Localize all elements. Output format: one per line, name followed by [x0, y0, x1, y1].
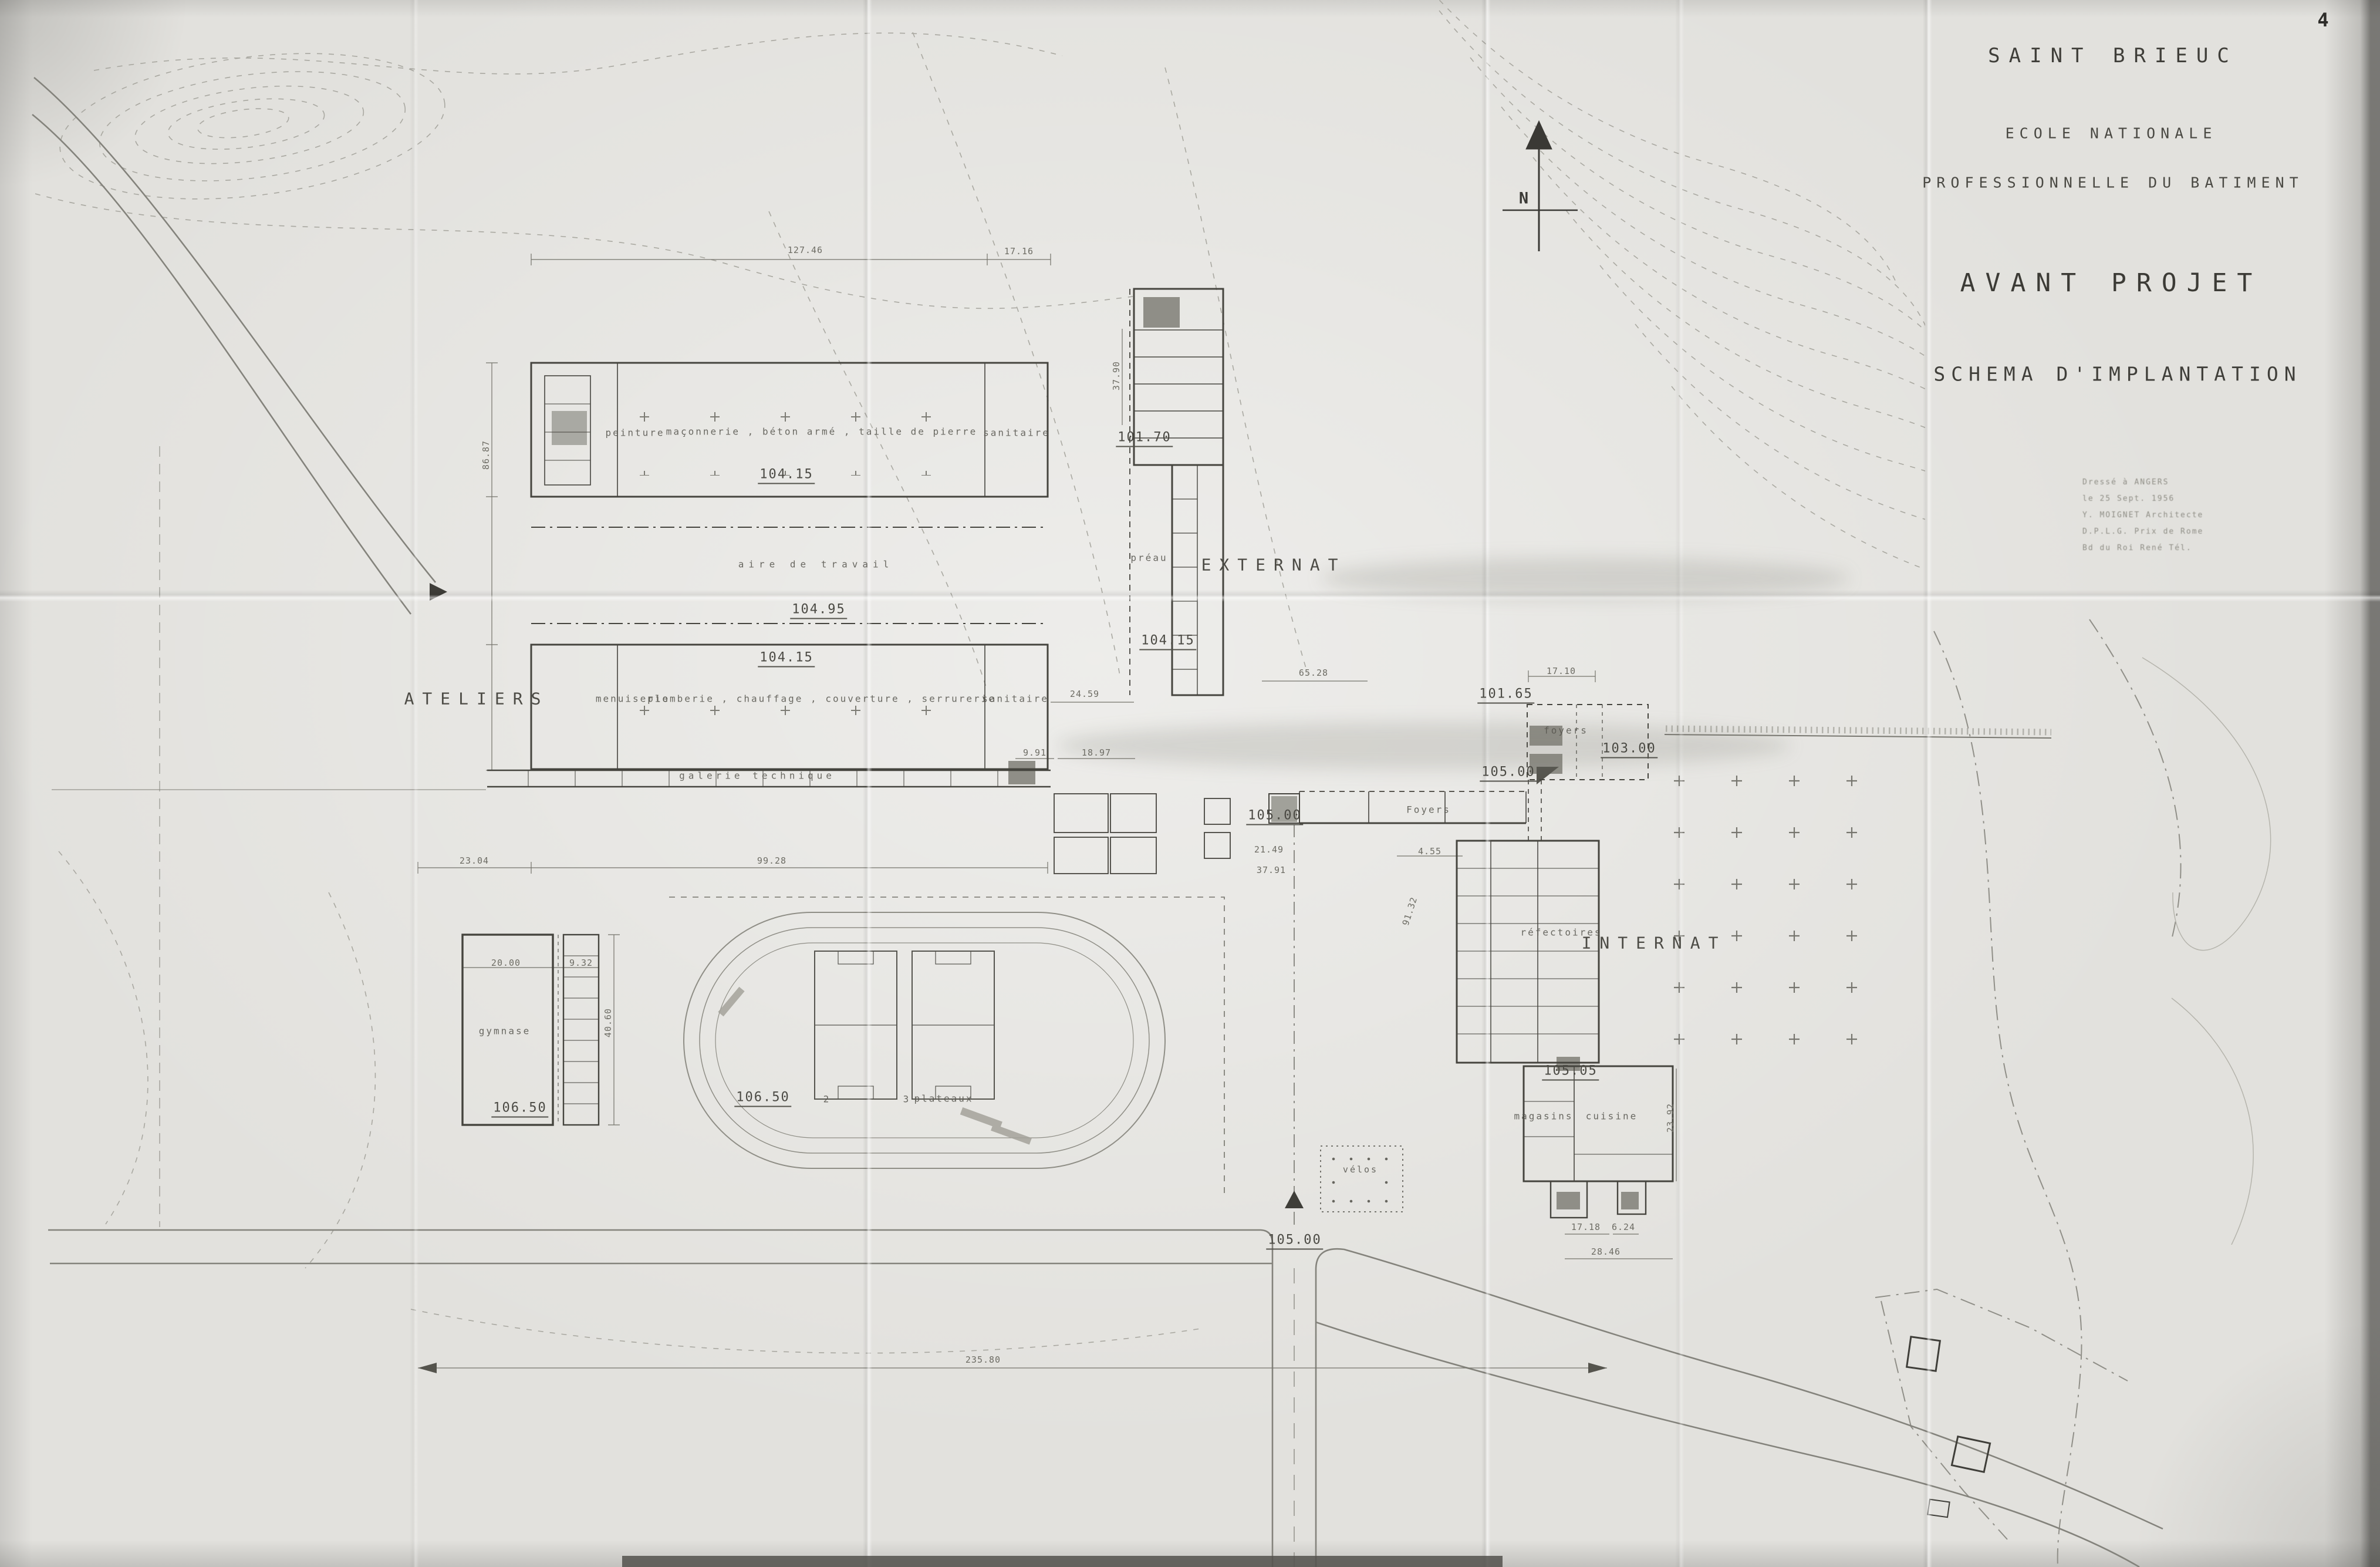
level-aire: 104.95 — [790, 602, 847, 619]
dim-99-28: 99.28 — [757, 855, 786, 866]
dim-86-87: 86.87 — [481, 440, 491, 470]
room-preau: préau — [1130, 552, 1167, 564]
level-route: 105.00 — [1266, 1233, 1323, 1250]
title-notes: Dressé à ANGERS le 25 Sept. 1956 Y. MOIG… — [2082, 474, 2203, 557]
south-entry-arrow — [1285, 1191, 1304, 1208]
dim-23-92: 23.92 — [1665, 1103, 1676, 1133]
room-refectoires: réfectoires — [1521, 927, 1602, 938]
boundary-lines — [1875, 619, 2181, 1567]
room-cuisine: cuisine — [1586, 1111, 1638, 1122]
dim-9-91: 9.91 — [1023, 747, 1046, 758]
plateau-number-2: 2 — [823, 1094, 831, 1105]
title-project: AVANT PROJET — [1960, 268, 2263, 298]
zone-externat: EXTERNAT — [1201, 555, 1346, 575]
zone-ateliers: ATELIERS — [404, 689, 549, 709]
room-second-oeuvre: plomberie , chauffage , couverture , ser… — [647, 693, 996, 705]
dim-28-46: 28.46 — [1591, 1246, 1621, 1257]
north-letter: N — [1519, 190, 1528, 208]
dim-18-97: 18.97 — [1082, 747, 1111, 758]
room-sanitaire-nord: sanitaire — [983, 427, 1050, 439]
dim-17-10: 17.10 — [1547, 666, 1576, 676]
room-galerie-technique: galerie technique — [679, 770, 835, 781]
dim-6-24: 6.24 — [1612, 1222, 1635, 1232]
level-ateliers-nord: 104.15 — [758, 467, 815, 484]
building-externat — [1054, 780, 1541, 874]
west-entry-arrow — [430, 583, 447, 601]
far-right-terrain-lines — [2142, 658, 2271, 1245]
sports-courts — [815, 951, 994, 1099]
level-batiment-nord: 101.70 — [1116, 430, 1173, 447]
note-line: le 25 Sept. 1956 — [2082, 491, 2203, 507]
north-arrow — [1503, 121, 1578, 251]
dim-37-90: 37.90 — [1111, 361, 1122, 390]
scan-edge-strip — [622, 1556, 1503, 1567]
title-school-line1: ECOLE NATIONALE — [2006, 125, 2217, 142]
plateau-number-3: 3 — [903, 1094, 911, 1105]
dim-37-91: 37.91 — [1257, 865, 1286, 875]
dim-127-46: 127.46 — [788, 245, 823, 255]
level-ateliers-sud: 104.15 — [758, 651, 815, 668]
room-peinture: peinture — [605, 427, 664, 439]
level-gymnase: 106.50 — [491, 1101, 548, 1118]
title-city: SAINT BRIEUC — [1988, 44, 2238, 68]
sports-boundary — [669, 897, 1224, 1198]
room-foyers-externat: Foyers — [1406, 804, 1451, 815]
note-line: Y. MOIGNET Architecte — [2082, 507, 2203, 524]
level-preau: 104.15 — [1139, 633, 1196, 651]
level-entree-nord: 101.65 — [1477, 687, 1534, 704]
title-school-line2: PROFESSIONNELLE DU BATIMENT — [1922, 174, 2303, 191]
level-foyers: 105.00 — [1480, 765, 1537, 782]
building-cuisine — [1524, 1066, 1673, 1218]
dim-4-55: 4.55 — [1418, 846, 1441, 857]
page-number: 4 — [2317, 9, 2328, 31]
dim-20-00: 20.00 — [491, 958, 521, 968]
room-magasins: magasins — [1514, 1111, 1573, 1122]
level-cour-est: 103.00 — [1601, 742, 1657, 759]
drawing-linework — [0, 0, 2380, 1567]
level-stade: 106.50 — [734, 1090, 791, 1107]
jump-pits — [718, 987, 1032, 1145]
title-subtitle: SCHEMA D'IMPLANTATION — [1933, 363, 2301, 386]
contour-lines — [35, 0, 2159, 1353]
room-gymnase: gymnase — [479, 1026, 531, 1037]
dim-23-04: 23.04 — [460, 855, 489, 866]
note-line: Dressé à ANGERS — [2082, 474, 2203, 491]
embankment-hatch — [1665, 729, 2051, 738]
note-line: Bd du Roi René Tél. — [2082, 540, 2203, 557]
level-cuisine: 105.05 — [1542, 1064, 1599, 1081]
room-aire-de-travail: aire de travail — [738, 559, 894, 570]
dim-40-60: 40.60 — [603, 1008, 613, 1037]
dim-17-18: 17.18 — [1571, 1222, 1601, 1232]
room-sanitaire-sud: sanitaire — [982, 693, 1049, 705]
dim-235-80: 235.80 — [965, 1354, 1001, 1365]
level-externat: 105.00 — [1246, 808, 1303, 825]
zone-internat: INTERNAT — [1582, 934, 1727, 953]
note-line: D.P.L.G. Prix de Rome — [2082, 524, 2203, 540]
velos-enclosure — [1321, 1146, 1403, 1212]
scanned-site-plan: { "page": {"number": "4"}, "title_block"… — [0, 0, 2380, 1567]
dim-17-16: 17.16 — [1004, 246, 1034, 257]
room-foyers-internat: foyers — [1544, 725, 1588, 736]
room-velos: vélos — [1343, 1164, 1378, 1175]
room-gros-oeuvre: maçonnerie , béton armé , taille de pier… — [666, 426, 978, 437]
dim-24-59: 24.59 — [1070, 689, 1099, 699]
dim-65-28: 65.28 — [1299, 668, 1328, 678]
building-internat — [1457, 739, 1903, 1063]
room-plateaux: plateaux — [914, 1093, 973, 1104]
dim-21-49: 21.49 — [1254, 844, 1284, 855]
dim-9-32: 9.32 — [569, 958, 593, 968]
